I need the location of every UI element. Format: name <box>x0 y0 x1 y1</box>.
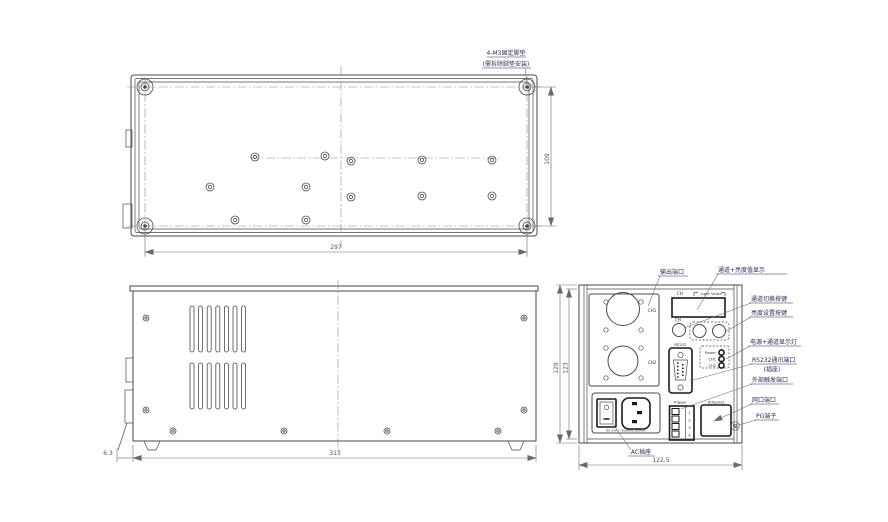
brightness-buttons-group-box <box>690 322 729 340</box>
ch1-led <box>719 356 724 361</box>
ch2-led <box>719 363 724 368</box>
top-view-dimensions: 297 109 <box>145 87 556 257</box>
dim-109: 109 <box>544 153 551 165</box>
technical-drawing-canvas: 4-M3固定脚垫 (需拆除脚垫安装) 297 109 <box>0 0 888 522</box>
trigger-pin-2: 2 <box>688 419 690 423</box>
top-view-centerlines <box>127 66 541 248</box>
brightness-up-button <box>693 325 706 338</box>
drawing-svg: 4-M3固定脚垫 (需拆除脚垫安装) 297 109 <box>0 0 888 522</box>
foot-pad-note-line2: (需拆除脚垫安装) <box>483 60 530 68</box>
top-view-mid-line <box>135 79 533 233</box>
foot-pads <box>137 79 535 234</box>
ch2-label: CH2 <box>648 360 657 365</box>
leader-power-channel-leds <box>726 346 750 359</box>
callout-rs232-line1: RS232通讯端口 <box>752 356 795 364</box>
dim-297: 297 <box>330 244 342 251</box>
ch1-led-label: CH1 <box>709 358 717 362</box>
top-view: 4-M3固定脚垫 (需拆除脚垫安装) 297 109 <box>123 49 556 257</box>
screw-holes <box>206 152 496 224</box>
top-view-outer-case <box>131 75 537 236</box>
ch1-output-connector <box>607 293 640 326</box>
trigger-label: Trigger <box>672 400 687 405</box>
side-view-connector-bumps <box>118 358 133 450</box>
channel-switch-button <box>673 324 686 337</box>
side-view-dimensions: 313 6.3 <box>103 445 536 462</box>
trigger-pin-4: 4 <box>688 434 691 438</box>
callout-power-channel-leds: 电源+通道显示灯 <box>750 338 797 346</box>
callout-network-port: 网口端口 <box>752 396 776 404</box>
trigger-pin-squares <box>672 409 679 438</box>
dim-123: 123 <box>563 362 570 374</box>
callout-brightness-set: 亮度设置按键 <box>751 309 787 317</box>
display-ch-header: CH <box>677 291 683 296</box>
callout-channel-switch: 通道切换按键 <box>751 295 787 303</box>
display-value-header: Light Value <box>700 291 722 296</box>
ethernet-label: Ethernet <box>708 400 725 405</box>
callout-ac-socket: AC插座 <box>631 448 651 456</box>
brightness-down-button <box>713 325 726 338</box>
chassis-feet <box>144 441 524 450</box>
side-view-body <box>133 291 536 441</box>
side-view-screws <box>143 315 527 434</box>
trigger-pin-1: 1 <box>688 411 690 415</box>
leader-network-port <box>714 404 752 421</box>
ch2-led-label: CH2 <box>709 364 717 368</box>
leader-rs232 <box>690 364 752 381</box>
db9-pins <box>677 362 684 378</box>
output-plate: CH1 CH2 <box>589 293 659 387</box>
rs232-connector: RS232 <box>669 342 692 393</box>
callout-output-port: 输出端口 <box>660 268 684 276</box>
dim-129: 129 <box>553 362 560 374</box>
ethernet-connector: Ethernet <box>701 400 731 437</box>
leader-output-port <box>648 276 660 306</box>
dim-122-5: 122.5 <box>652 457 669 464</box>
foot-pad-leader-line <box>525 68 527 84</box>
ch2-output-connector <box>608 346 638 376</box>
ac-rating-text: 90-240V~50/60Hz 800mA <box>606 429 646 433</box>
pg-terminal <box>731 422 739 430</box>
rs232-label: RS232 <box>674 342 687 347</box>
power-led <box>719 350 724 355</box>
dim-6-3: 6.3 <box>103 450 113 457</box>
callout-rs232-line2: (插座) <box>764 366 781 374</box>
panel-buttons: CH <box>673 318 730 341</box>
vent-slots <box>190 306 246 409</box>
callout-external-trigger: 外部触发端口 <box>752 376 788 384</box>
ac-inlet-module: 90-240V~50/60Hz 800mA <box>592 393 660 433</box>
side-view-lid-rail <box>130 286 538 291</box>
power-led-label: Power <box>705 351 716 355</box>
top-view-bottom-plate <box>139 82 529 229</box>
ch1-label: CH1 <box>648 308 657 313</box>
rear-view: CH1 CH2 CH Light Value CH RS232 <box>553 285 742 470</box>
ch-button-label: CH <box>675 318 681 323</box>
foot-pad-note-line1: 4-M3固定脚垫 <box>487 49 526 57</box>
trigger-pin-3: 3 <box>688 426 690 430</box>
dim-313: 313 <box>329 450 341 457</box>
callout-pg-terminal: PG端子 <box>756 412 776 420</box>
display-module: CH Light Value <box>672 291 725 317</box>
side-view: 313 6.3 <box>103 280 538 462</box>
callout-display: 通道+亮度值显示 <box>718 266 765 274</box>
led-indicator-box: Power CH1 CH2 <box>700 346 729 368</box>
